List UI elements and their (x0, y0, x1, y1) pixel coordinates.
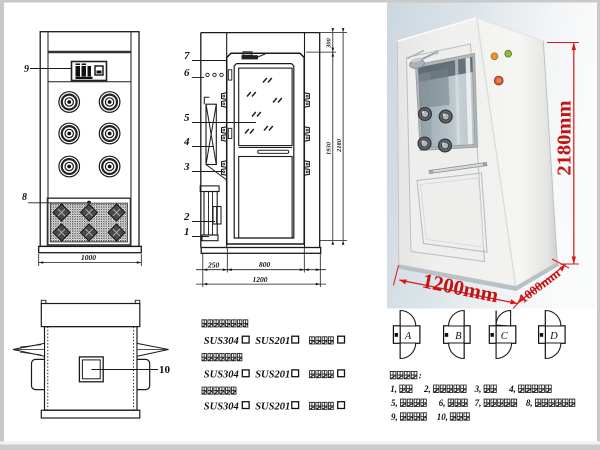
svg-text:3: 3 (183, 161, 190, 173)
svg-text:SUS304: SUS304 (204, 402, 239, 413)
svg-text:SUS304: SUS304 (204, 336, 239, 347)
svg-text:8: 8 (22, 192, 27, 203)
svg-text:4,: 4, (508, 384, 516, 394)
svg-text:B: B (455, 331, 462, 342)
svg-text:2180: 2180 (336, 138, 343, 153)
svg-text:9: 9 (24, 64, 29, 75)
svg-text:3,: 3, (474, 384, 482, 394)
svg-text:250: 250 (207, 260, 220, 269)
svg-text:D: D (549, 331, 558, 342)
svg-text:7,: 7, (475, 398, 482, 408)
svg-text:1: 1 (184, 226, 190, 238)
svg-text:1200: 1200 (253, 275, 268, 284)
svg-text:SUS201: SUS201 (255, 336, 290, 347)
svg-text:4: 4 (183, 136, 190, 148)
svg-text:6: 6 (184, 67, 190, 79)
svg-text::: : (419, 371, 422, 381)
svg-text:A: A (404, 331, 412, 342)
svg-text:2,: 2, (423, 384, 431, 394)
svg-text:1,: 1, (390, 384, 397, 394)
svg-text:2180mm: 2180mm (554, 100, 576, 175)
svg-text:5,: 5, (391, 398, 398, 408)
svg-text:8,: 8, (526, 398, 533, 408)
svg-text:SUS304: SUS304 (204, 370, 239, 381)
svg-text:5: 5 (184, 112, 190, 124)
svg-text:6,: 6, (439, 398, 446, 408)
svg-text:1930: 1930 (326, 141, 333, 155)
svg-text:C: C (501, 331, 509, 342)
svg-text:7: 7 (184, 50, 190, 62)
svg-text:10,: 10, (437, 412, 448, 422)
svg-text:SUS201: SUS201 (255, 402, 290, 413)
svg-text:300: 300 (326, 38, 333, 50)
svg-text:1000: 1000 (81, 253, 96, 262)
svg-text:2: 2 (183, 211, 190, 223)
svg-text:SUS201: SUS201 (255, 370, 290, 381)
svg-text:9,: 9, (391, 412, 398, 422)
svg-text:800: 800 (259, 260, 271, 269)
svg-text:10: 10 (159, 364, 171, 376)
